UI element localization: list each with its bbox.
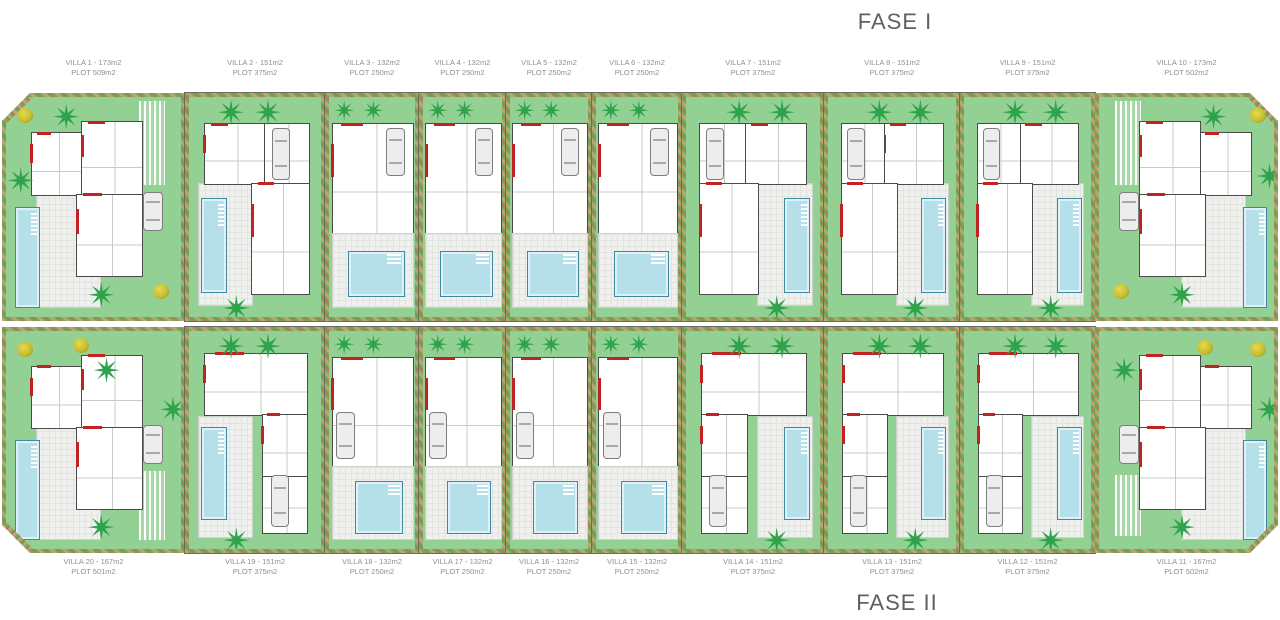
shrub-icon	[17, 342, 33, 357]
villa-plot	[824, 93, 960, 321]
palm-tree-icon	[1201, 104, 1227, 130]
villa-plot-size: PLOT 375m2	[1000, 68, 1056, 78]
car	[143, 192, 163, 231]
driveway	[139, 101, 165, 185]
fase-1-row	[2, 93, 1278, 321]
palm-tree-icon	[726, 333, 752, 359]
building	[31, 366, 84, 429]
villa-plot	[419, 93, 506, 321]
villa-name-area: VILLA 12 - 151m2	[997, 557, 1057, 567]
villa-label: VILLA 2 - 151m2PLOT 375m2	[227, 58, 283, 78]
villa-plan	[596, 331, 678, 549]
villa-plot	[1095, 327, 1278, 553]
villa-plot	[506, 327, 592, 553]
palm-tree-icon	[1169, 282, 1195, 308]
villa-plan	[329, 97, 415, 317]
villa-plot-size: PLOT 250m2	[435, 68, 491, 78]
villa-label: VILLA 20 - 167m2PLOT 501m2	[63, 557, 123, 577]
pool	[527, 251, 579, 297]
palm-tree-icon	[764, 527, 790, 553]
building	[701, 353, 808, 416]
car	[709, 475, 727, 527]
pool	[533, 481, 577, 533]
villa-plan	[423, 331, 502, 549]
palm-tree-icon	[1111, 357, 1137, 383]
palm-tree-icon	[769, 333, 795, 359]
driveway	[1115, 101, 1141, 185]
villa-name-area: VILLA 3 - 132m2	[344, 58, 400, 68]
palm-tree-icon	[160, 396, 185, 422]
palm-tree-icon	[1038, 527, 1064, 553]
villa-name-area: VILLA 15 - 132m2	[607, 557, 667, 567]
palm-tree-icon	[1002, 333, 1028, 359]
car	[386, 128, 405, 176]
villa-name-area: VILLA 11 - 167m2	[1157, 557, 1216, 567]
palm-tree-icon	[629, 100, 649, 120]
shrub-icon	[1197, 340, 1213, 355]
phase-2-title: FASE II	[787, 590, 1007, 616]
palm-tree-icon	[53, 104, 79, 130]
car	[650, 128, 668, 176]
villa-name-area: VILLA 5 - 132m2	[521, 58, 577, 68]
palm-tree-icon	[1002, 99, 1028, 125]
pool	[440, 251, 493, 297]
pool	[1243, 207, 1268, 308]
palm-tree-icon	[223, 527, 249, 553]
building	[81, 121, 143, 196]
palm-tree-icon	[902, 295, 928, 321]
villa-plan	[189, 97, 321, 317]
palm-tree-icon	[334, 334, 354, 354]
villa-name-area: VILLA 19 - 151m2	[225, 557, 285, 567]
car	[1119, 425, 1139, 464]
pool	[784, 198, 810, 292]
villa-name-area: VILLA 14 - 151m2	[723, 557, 783, 567]
car	[603, 412, 621, 460]
building	[204, 353, 309, 416]
villa-label: VILLA 18 - 132m2PLOT 250m2	[342, 557, 402, 577]
villa-name-area: VILLA 6 - 132m2	[609, 58, 665, 68]
villa-label: VILLA 1 - 173m2PLOT 509m2	[66, 58, 122, 78]
palm-tree-icon	[363, 100, 383, 120]
villa-plan	[6, 331, 181, 549]
shrub-icon	[1250, 108, 1266, 123]
palm-tree-icon	[907, 99, 933, 125]
villa-plot	[1095, 93, 1278, 321]
villa-label: VILLA 10 - 173m2PLOT 502m2	[1156, 58, 1216, 78]
building	[1199, 366, 1252, 429]
pool	[784, 427, 810, 521]
villa-label: VILLA 3 - 132m2PLOT 250m2	[344, 58, 400, 78]
building	[744, 123, 808, 184]
villa-plan	[189, 331, 321, 549]
villa-plot-size: PLOT 250m2	[521, 68, 577, 78]
shrub-icon	[73, 338, 89, 353]
driveway	[139, 471, 165, 541]
villa-label: VILLA 15 - 132m2PLOT 250m2	[607, 557, 667, 577]
villa-plot	[682, 327, 824, 553]
villa-plan	[828, 331, 956, 549]
palm-tree-icon	[601, 100, 621, 120]
shrub-icon	[1250, 342, 1266, 357]
palm-tree-icon	[428, 100, 448, 120]
palm-tree-icon	[515, 334, 535, 354]
villa-plot	[2, 327, 185, 553]
villa-plot-size: PLOT 375m2	[723, 567, 783, 577]
pool	[1243, 440, 1268, 540]
site-plan-canvas: FASE I VILLA 1 - 173m2PLOT 509m2VILLA 2 …	[0, 0, 1280, 620]
villa-name-area: VILLA 7 - 151m2	[725, 58, 781, 68]
villa-label: VILLA 19 - 151m2PLOT 375m2	[225, 557, 285, 577]
villa-label: VILLA 5 - 132m2PLOT 250m2	[521, 58, 577, 78]
palm-tree-icon	[629, 334, 649, 354]
building	[977, 183, 1034, 295]
villa-plot	[960, 93, 1095, 321]
palm-tree-icon	[601, 334, 621, 354]
car	[271, 475, 289, 527]
villa-plan	[510, 97, 588, 317]
villa-name-area: VILLA 16 - 132m2	[519, 557, 579, 567]
villa-plot-size: PLOT 375m2	[725, 68, 781, 78]
villa-plot	[185, 93, 325, 321]
palm-tree-icon	[255, 333, 281, 359]
villa-plot	[185, 327, 325, 553]
driveway	[1115, 475, 1141, 536]
villa-name-area: VILLA 1 - 173m2	[66, 58, 122, 68]
villa-label: VILLA 12 - 151m2PLOT 375m2	[997, 557, 1057, 577]
palm-tree-icon	[515, 100, 535, 120]
villa-plot-size: PLOT 250m2	[607, 567, 667, 577]
building	[883, 123, 944, 184]
building	[1199, 132, 1252, 196]
palm-tree-icon	[223, 295, 249, 321]
building	[1139, 355, 1201, 429]
pool	[15, 207, 40, 308]
villa-plan	[423, 97, 502, 317]
palm-tree-icon	[94, 357, 120, 383]
villa-plot	[325, 327, 419, 553]
pool	[201, 427, 227, 521]
palm-tree-icon	[255, 99, 281, 125]
palm-tree-icon	[1043, 99, 1069, 125]
car	[143, 425, 163, 464]
building	[251, 183, 310, 295]
villa-plot	[325, 93, 419, 321]
villa-name-area: VILLA 10 - 173m2	[1156, 58, 1216, 68]
building	[978, 414, 1023, 477]
car	[475, 128, 493, 176]
pool	[348, 251, 405, 297]
building	[1139, 427, 1206, 510]
villa-plot	[824, 327, 960, 553]
building	[262, 414, 309, 477]
villa-name-area: VILLA 18 - 132m2	[342, 557, 402, 567]
villa-label: VILLA 17 - 132m2PLOT 250m2	[432, 557, 492, 577]
villa-plan	[1099, 97, 1274, 317]
car	[850, 475, 867, 527]
pool	[921, 427, 946, 521]
villa-plot	[506, 93, 592, 321]
building	[1019, 123, 1079, 184]
palm-tree-icon	[1169, 514, 1195, 540]
building	[842, 414, 888, 477]
car	[986, 475, 1003, 527]
villa-plan	[6, 97, 181, 317]
car	[1119, 192, 1139, 231]
villa-plot	[682, 93, 824, 321]
villa-plan	[686, 331, 820, 549]
villa-label: VILLA 13 - 151m2PLOT 375m2	[862, 557, 922, 577]
villa-plot-size: PLOT 375m2	[862, 567, 922, 577]
car	[706, 128, 724, 181]
palm-tree-icon	[541, 334, 561, 354]
villa-name-area: VILLA 13 - 151m2	[862, 557, 922, 567]
villa-label: VILLA 7 - 151m2PLOT 375m2	[725, 58, 781, 78]
palm-tree-icon	[455, 334, 475, 354]
shrub-icon	[153, 284, 169, 299]
villa-plot-size: PLOT 250m2	[344, 68, 400, 78]
villa-plot-size: PLOT 375m2	[864, 68, 920, 78]
villa-label: VILLA 8 - 151m2PLOT 375m2	[864, 58, 920, 78]
building	[699, 183, 759, 295]
car	[516, 412, 534, 460]
building	[1139, 121, 1201, 196]
villa-plot-size: PLOT 375m2	[225, 567, 285, 577]
palm-tree-icon	[769, 99, 795, 125]
villa-plot	[419, 327, 506, 553]
palm-tree-icon	[363, 334, 383, 354]
villa-plot-size: PLOT 250m2	[519, 567, 579, 577]
villa-plan	[686, 97, 820, 317]
pool	[447, 481, 492, 533]
villa-label: VILLA 14 - 151m2PLOT 375m2	[723, 557, 783, 577]
building	[76, 427, 143, 510]
building	[841, 183, 898, 295]
palm-tree-icon	[428, 334, 448, 354]
villa-plot-size: PLOT 250m2	[342, 567, 402, 577]
shrub-icon	[1113, 284, 1129, 299]
villa-plot	[960, 327, 1095, 553]
palm-tree-icon	[8, 167, 34, 193]
villa-name-area: VILLA 9 - 151m2	[1000, 58, 1056, 68]
pool	[1057, 427, 1082, 521]
car	[561, 128, 579, 176]
car	[429, 412, 447, 460]
villa-label: VILLA 6 - 132m2PLOT 250m2	[609, 58, 665, 78]
villa-plot	[592, 93, 682, 321]
building	[701, 414, 749, 477]
palm-tree-icon	[218, 333, 244, 359]
villa-plan	[329, 331, 415, 549]
villa-plot-size: PLOT 501m2	[63, 567, 123, 577]
palm-tree-icon	[1257, 396, 1279, 422]
villa-plot-size: PLOT 375m2	[997, 567, 1057, 577]
palm-tree-icon	[1043, 333, 1069, 359]
building	[978, 353, 1079, 416]
palm-tree-icon	[907, 333, 933, 359]
palm-tree-icon	[88, 282, 114, 308]
palm-tree-icon	[218, 99, 244, 125]
palm-tree-icon	[541, 100, 561, 120]
villa-label: VILLA 11 - 167m2PLOT 502m2	[1157, 557, 1216, 577]
palm-tree-icon	[1257, 163, 1279, 189]
palm-tree-icon	[902, 527, 928, 553]
villa-plot	[2, 93, 185, 321]
villa-label: VILLA 9 - 151m2PLOT 375m2	[1000, 58, 1056, 78]
pool	[621, 481, 667, 533]
phase-1-title: FASE I	[785, 9, 1005, 35]
shrub-icon	[17, 108, 33, 123]
pool	[201, 198, 227, 292]
villa-label: VILLA 16 - 132m2PLOT 250m2	[519, 557, 579, 577]
fase-2-row	[2, 327, 1278, 553]
pool	[355, 481, 403, 533]
car	[983, 128, 1000, 181]
villa-plot	[592, 327, 682, 553]
villa-name-area: VILLA 2 - 151m2	[227, 58, 283, 68]
pool	[15, 440, 40, 540]
car	[847, 128, 864, 181]
building	[842, 353, 944, 416]
villa-name-area: VILLA 17 - 132m2	[432, 557, 492, 567]
villa-plan	[964, 97, 1091, 317]
palm-tree-icon	[1038, 295, 1064, 321]
palm-tree-icon	[866, 99, 892, 125]
villa-plan	[510, 331, 588, 549]
villa-plot-size: PLOT 250m2	[609, 68, 665, 78]
villa-plan	[828, 97, 956, 317]
palm-tree-icon	[334, 100, 354, 120]
villa-plot-size: PLOT 375m2	[227, 68, 283, 78]
car	[272, 128, 290, 181]
villa-plot-size: PLOT 502m2	[1157, 567, 1216, 577]
villa-plot-size: PLOT 250m2	[432, 567, 492, 577]
villa-plan	[596, 97, 678, 317]
pool	[921, 198, 946, 292]
pool	[614, 251, 668, 297]
palm-tree-icon	[866, 333, 892, 359]
villa-plan	[1099, 331, 1274, 549]
palm-tree-icon	[455, 100, 475, 120]
villa-plot-size: PLOT 502m2	[1156, 68, 1216, 78]
palm-tree-icon	[764, 295, 790, 321]
building	[204, 123, 267, 184]
building	[1139, 194, 1206, 277]
car	[336, 412, 355, 460]
palm-tree-icon	[726, 99, 752, 125]
building	[31, 132, 84, 196]
villa-plan	[964, 331, 1091, 549]
villa-name-area: VILLA 4 - 132m2	[435, 58, 491, 68]
villa-plot-size: PLOT 509m2	[66, 68, 122, 78]
villa-name-area: VILLA 20 - 167m2	[63, 557, 123, 567]
pool	[1057, 198, 1082, 292]
palm-tree-icon	[88, 514, 114, 540]
building	[76, 194, 143, 277]
villa-name-area: VILLA 8 - 151m2	[864, 58, 920, 68]
villa-label: VILLA 4 - 132m2PLOT 250m2	[435, 58, 491, 78]
